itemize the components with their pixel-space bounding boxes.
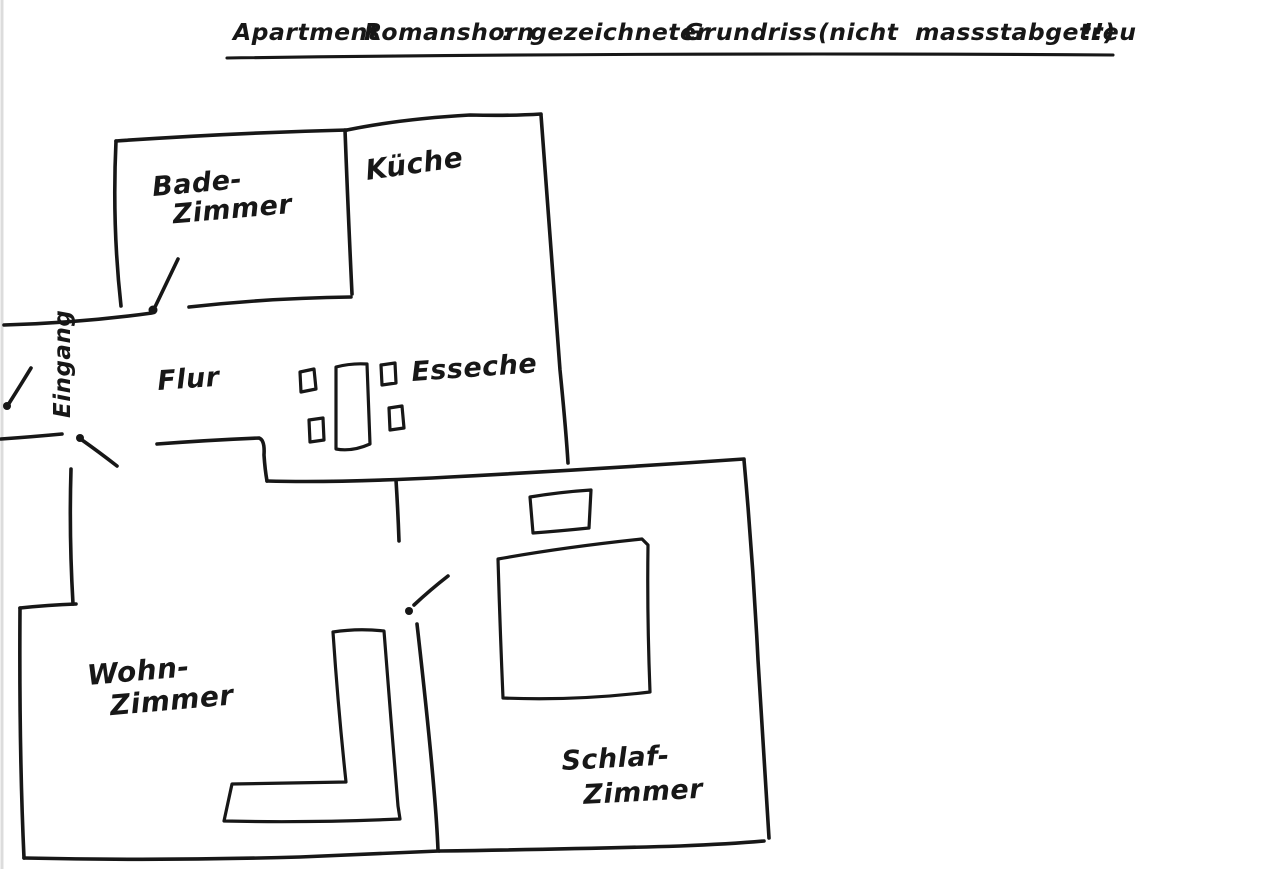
- door-leaf-line: [414, 576, 448, 605]
- door-bedroom: [405, 576, 448, 615]
- title-word: (nicht: [818, 18, 899, 46]
- wall-bathroom-left: [115, 141, 121, 306]
- dining-chair-icon: [381, 363, 396, 385]
- title-word: !!): [1082, 18, 1116, 46]
- bed-icon: [498, 539, 650, 699]
- dining-chair-icon: [309, 418, 324, 442]
- wall-kitchen-top: [347, 114, 541, 130]
- wall-living-left-lower: [20, 608, 24, 858]
- drawing-title: Apartment Romanshorn : gezeichneter Grun…: [231, 18, 1145, 46]
- wall-hall-bottom-step: [157, 438, 267, 481]
- wall-outer-lower-left: [1, 434, 62, 439]
- label-schlafzimmer: Schlaf- Zimmer: [561, 739, 705, 812]
- dining-table-icon: [336, 364, 370, 450]
- sofa-icon: [224, 630, 400, 822]
- title-word: Apartment: [231, 18, 380, 46]
- wall-living-bottom: [24, 851, 439, 859]
- door-leaf-line: [8, 368, 31, 405]
- wall-outer-upper-left: [4, 313, 152, 325]
- door-living-room: [76, 434, 117, 466]
- wall-bedroom-door-jamb: [396, 480, 399, 541]
- bedside-table-icon: [530, 490, 591, 533]
- wall-kitchen-right: [541, 115, 568, 463]
- dining-chair-icon: [389, 406, 404, 430]
- title-word: gezeichneter: [530, 18, 709, 46]
- wall-living-left-step: [20, 604, 76, 608]
- wall-living-left-upper: [70, 469, 73, 604]
- dining-chair-icon: [300, 369, 316, 392]
- wall-dining-bedroom-top: [267, 459, 744, 482]
- door-leaf-line: [155, 259, 178, 307]
- label-eingang: Eingang: [50, 310, 76, 418]
- title-word: :: [502, 18, 512, 46]
- door-leaf-line: [82, 440, 117, 466]
- wall-bedroom-bottom: [439, 841, 764, 851]
- label-kueche: Küche: [363, 141, 465, 187]
- label-essecke: Esseche: [410, 348, 538, 388]
- room-label: Zimmer: [582, 774, 705, 811]
- label-flur: Flur: [156, 362, 221, 397]
- room-label: Schlaf-: [561, 740, 671, 777]
- door-entrance: [3, 368, 31, 410]
- title-word: Grundriss: [684, 18, 817, 46]
- whiteboard-canvas[interactable]: Apartment Romanshorn : gezeichneter Grun…: [0, 0, 1280, 869]
- wall-bathroom-right: [345, 130, 352, 294]
- label-badezimmer: Bade- Zimmer: [151, 160, 295, 232]
- door-hinge-dot: [405, 607, 413, 615]
- wall-living-bedroom-divider: [417, 624, 438, 850]
- label-wohnzimmer: Wohn- Zimmer: [86, 646, 237, 723]
- wall-bathroom-top: [116, 130, 347, 141]
- title-underline: [227, 54, 1113, 58]
- floorplan-drawing: Apartment Romanshorn : gezeichneter Grun…: [0, 0, 1280, 869]
- wall-bathroom-bottom: [189, 297, 351, 307]
- door-bathroom: [149, 259, 179, 315]
- wall-bedroom-right: [744, 460, 769, 838]
